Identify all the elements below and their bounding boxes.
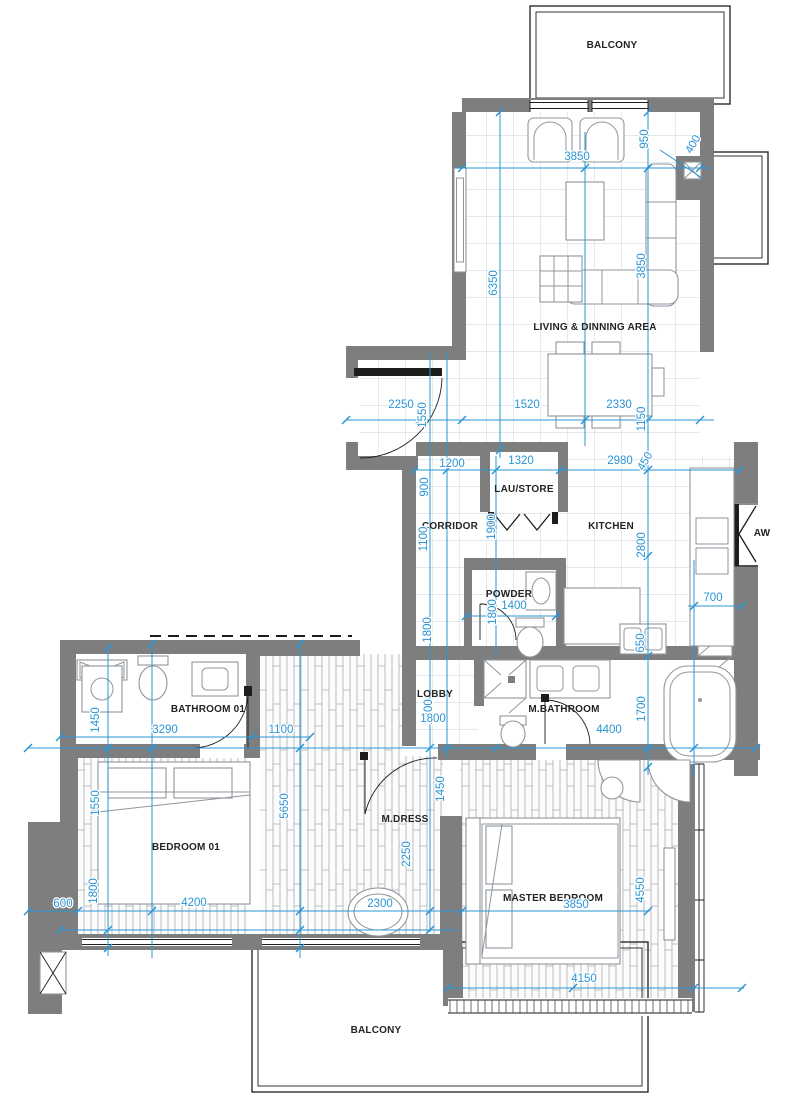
room-label-kitchen: KITCHEN: [588, 521, 634, 532]
dim-label-20: 700: [703, 592, 722, 604]
powder-toilet: [517, 627, 543, 657]
toilet-01: [139, 666, 167, 700]
dim-label-40: 4150: [571, 973, 597, 985]
floor-plan-page: BALCONYLIVING & DINNING AREALAU/STORECOR…: [0, 0, 794, 1100]
bedroom-01-furniture: [98, 762, 250, 904]
dim-label-6: 1550: [417, 402, 429, 428]
dim-label-29: 1100: [269, 724, 294, 736]
room-label-balcony-top: BALCONY: [587, 40, 638, 51]
room-label-m-dress: M.DRESS: [382, 814, 429, 825]
dim-label-17: 2800: [636, 532, 648, 558]
room-label-bathroom-01: BATHROOM 01: [171, 704, 245, 715]
room-label-lau-store: LAU/STORE: [494, 484, 554, 495]
dim-label-36: 4200: [181, 897, 207, 909]
grid-side-table: [540, 256, 582, 302]
bed-01-pillow: [108, 768, 166, 798]
room-label-bedroom-01: BEDROOM 01: [152, 842, 220, 853]
powder-toilet-tank: [516, 618, 544, 627]
master-east-glazing: [695, 764, 704, 1012]
floor-plan-svg: BALCONYLIVING & DINNING AREALAU/STORECOR…: [0, 0, 794, 1100]
room-label-corridor: CORRIDOR: [422, 521, 479, 532]
toilet-tank-01: [138, 656, 168, 665]
stool: [601, 777, 623, 799]
dim-label-0: 3850: [564, 151, 590, 163]
dim-label-9: 1150: [636, 407, 648, 432]
dim-label-30: 1550: [90, 790, 102, 816]
dim-label-37: 2300: [367, 898, 393, 910]
sink-01: [192, 662, 238, 696]
dim-label-32: 5650: [279, 793, 291, 819]
room-label-aw-window: AW: [754, 528, 771, 539]
dining-chair: [652, 368, 664, 396]
bed-01-pillow: [174, 768, 232, 798]
master-pillow: [486, 826, 512, 884]
dim-label-21: 650: [635, 633, 647, 652]
dim-label-7: 1520: [514, 399, 540, 411]
dim-label-31: 1800: [88, 878, 100, 904]
master-headboard: [466, 818, 480, 964]
room-label-balcony-bottom: BALCONY: [351, 1025, 402, 1036]
tv-unit: [454, 168, 466, 272]
room-label-living-dining: LIVING & DINNING AREA: [533, 322, 656, 333]
dim-label-27: 3290: [152, 724, 178, 736]
master-dresser: [664, 848, 675, 940]
dim-label-12: 2980: [607, 455, 633, 467]
washer: [82, 666, 122, 712]
dining-chair: [556, 342, 584, 354]
dining-chair: [556, 416, 584, 428]
dim-label-15: 1100: [418, 527, 430, 552]
dim-label-39: 4550: [635, 877, 647, 903]
room-label-m-bathroom: M.BATHROOM: [528, 704, 599, 715]
dim-label-24: 1800: [420, 713, 446, 725]
room-label-powder: POWDER: [486, 589, 533, 600]
balcony-top-outline: [530, 6, 730, 104]
dim-label-3: 6350: [488, 270, 500, 296]
mbath-toilet: [501, 721, 525, 747]
mdress-seat: [348, 888, 408, 936]
dim-label-11: 1320: [508, 455, 534, 467]
dim-label-33: 2250: [401, 841, 413, 867]
balcony-side-inner: [712, 156, 762, 258]
dim-label-26: 4400: [596, 724, 622, 736]
mbath-door: [541, 694, 590, 744]
dining-chair: [592, 342, 620, 354]
dim-label-38: 3850: [563, 899, 589, 911]
dim-label-4: 3850: [636, 253, 648, 279]
room-label-lobby: LOBBY: [417, 689, 453, 700]
kitchen-counter-right: [690, 468, 734, 646]
shaft-box-sw: [40, 952, 66, 994]
dim-label-28: 1450: [90, 707, 102, 733]
sofa-chaise: [566, 270, 678, 304]
dim-label-35: 600: [53, 898, 72, 910]
dim-label-5: 2250: [388, 399, 414, 411]
dim-label-16: 1900: [486, 514, 498, 540]
balcony-side-outline: [706, 152, 768, 264]
dim-label-19: 1800: [487, 599, 499, 625]
master-south-window-band: [448, 998, 692, 1016]
mdress-furniture: [348, 888, 408, 936]
dim-label-25: 1700: [636, 696, 648, 722]
dim-label-1: 950: [639, 129, 651, 148]
dim-label-18: 1400: [501, 600, 527, 612]
balcony-top-inner: [536, 12, 724, 98]
dim-label-14: 900: [419, 477, 431, 496]
dim-label-10: 1200: [439, 458, 465, 470]
dim-label-8: 2330: [606, 399, 632, 411]
dim-label-22: 1800: [422, 617, 434, 643]
dining-chair: [592, 416, 620, 428]
dim-label-34: 1450: [435, 776, 447, 802]
